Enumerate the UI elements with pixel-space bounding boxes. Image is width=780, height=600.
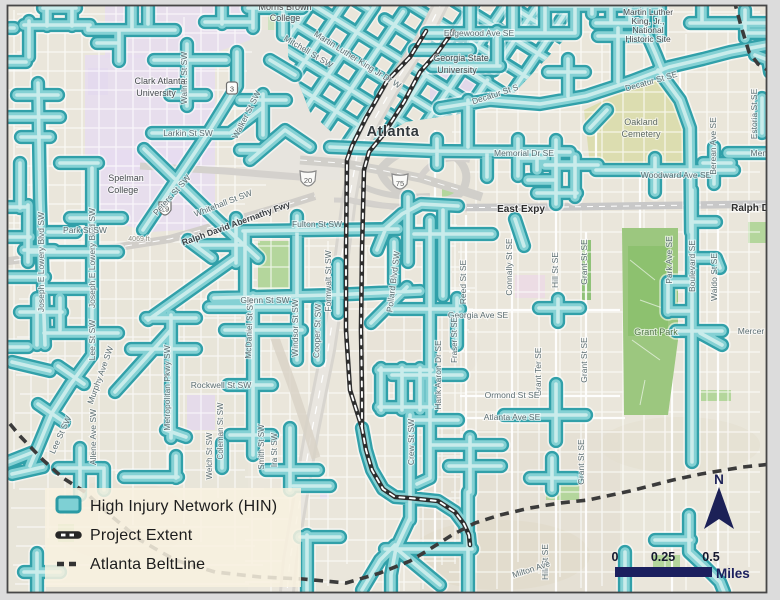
svg-text:Crew St SW: Crew St SW [406, 419, 416, 465]
svg-text:20: 20 [304, 176, 312, 185]
svg-text:Georgia State: Georgia State [433, 53, 489, 63]
svg-text:High Injury Network (HIN): High Injury Network (HIN) [90, 498, 277, 515]
svg-text:Lee St SW: Lee St SW [87, 320, 97, 361]
svg-text:Berean Ave SE: Berean Ave SE [708, 117, 718, 175]
svg-text:Project Extent: Project Extent [90, 527, 193, 544]
svg-text:Grant St SE: Grant St SE [576, 439, 586, 485]
svg-text:Atlanta: Atlanta [367, 124, 420, 140]
svg-text:0: 0 [612, 550, 619, 564]
svg-text:Fulton St SW: Fulton St SW [292, 219, 342, 229]
svg-text:Cooper St SW: Cooper St SW [311, 304, 323, 359]
svg-text:Larkin St SW: Larkin St SW [163, 128, 213, 138]
svg-text:Smith St SW: Smith St SW [257, 424, 266, 470]
svg-text:Grant Park: Grant Park [634, 327, 678, 337]
svg-text:Woodward Ave SE: Woodward Ave SE [641, 170, 712, 180]
svg-text:Historic Site: Historic Site [625, 34, 671, 44]
svg-text:Windsor St SW: Windsor St SW [290, 299, 300, 357]
svg-text:Joseph E Lowery Blvd SW: Joseph E Lowery Blvd SW [36, 212, 46, 312]
svg-text:Edgewood Ave SE: Edgewood Ave SE [444, 28, 515, 38]
svg-text:Waldo St SE: Waldo St SE [709, 253, 719, 301]
svg-text:Ormond St SE: Ormond St SE [485, 390, 540, 400]
svg-text:0.5: 0.5 [702, 550, 719, 564]
svg-text:Fraser St SE: Fraser St SE [450, 317, 459, 363]
svg-text:Rockwell St SW: Rockwell St SW [191, 380, 251, 390]
svg-text:Park Ave SE: Park Ave SE [664, 236, 674, 284]
svg-text:Formwalt St SW: Formwalt St SW [323, 250, 333, 311]
svg-text:Connally St SE: Connally St SE [504, 238, 514, 295]
svg-text:Hank Aaron Dr SE: Hank Aaron Dr SE [433, 340, 443, 410]
svg-text:Clark Atlanta: Clark Atlanta [134, 76, 185, 86]
svg-text:Coleman St SW: Coleman St SW [216, 402, 225, 459]
svg-text:Reed St SE: Reed St SE [458, 259, 468, 304]
svg-text:N: N [714, 472, 724, 487]
svg-text:Grant St SE: Grant St SE [579, 337, 589, 383]
svg-text:Ralph D: Ralph D [731, 203, 769, 214]
svg-text:Glenn St SW: Glenn St SW [240, 295, 289, 305]
svg-text:Oakland: Oakland [624, 117, 658, 127]
svg-text:75: 75 [396, 179, 404, 188]
svg-text:Ira St SW: Ira St SW [270, 432, 279, 467]
svg-text:Metropolitan Pkwy SW: Metropolitan Pkwy SW [162, 345, 172, 431]
svg-text:Spelman: Spelman [108, 173, 144, 183]
svg-text:0.25: 0.25 [651, 550, 675, 564]
svg-text:College: College [270, 13, 301, 23]
svg-text:East Expy: East Expy [497, 204, 545, 215]
svg-text:Cemetery: Cemetery [621, 129, 661, 139]
svg-text:Memorial Dr SE: Memorial Dr SE [494, 148, 554, 158]
svg-text:Boulevard SE: Boulevard SE [687, 240, 697, 292]
svg-text:Welch St SW: Welch St SW [205, 432, 214, 479]
svg-text:Atlanta BeltLine: Atlanta BeltLine [90, 556, 205, 573]
svg-text:Miles: Miles [716, 566, 750, 581]
svg-text:Atlanta Ave SE: Atlanta Ave SE [484, 412, 541, 422]
svg-text:College: College [108, 185, 139, 195]
svg-text:University: University [136, 88, 176, 98]
svg-text:University: University [437, 65, 477, 75]
svg-text:Hill St SE: Hill St SE [550, 252, 560, 288]
svg-text:3: 3 [230, 85, 234, 94]
svg-text:Grant St SE: Grant St SE [579, 239, 589, 285]
svg-text:Park St SW: Park St SW [63, 225, 107, 235]
svg-text:4069 ft: 4069 ft [128, 236, 149, 243]
svg-text:Allene Ave SW: Allene Ave SW [88, 409, 98, 465]
svg-text:Joseph E Lowery Blvd SW: Joseph E Lowery Blvd SW [87, 208, 97, 308]
svg-text:Estoria St SE: Estoria St SE [749, 88, 759, 139]
